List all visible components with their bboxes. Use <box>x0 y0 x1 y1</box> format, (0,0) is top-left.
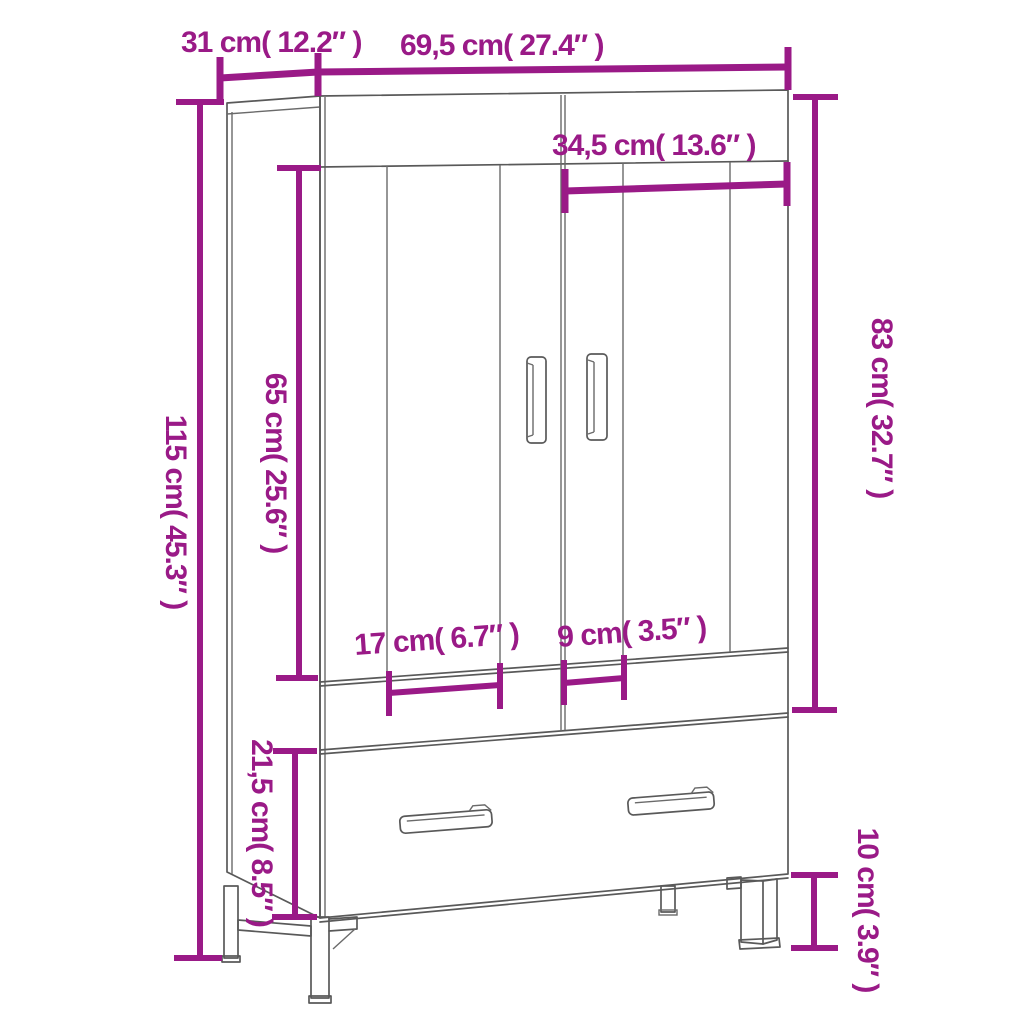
dim-label-depth: 31 cm( 12.2″ ) <box>181 26 361 59</box>
door-handle-left <box>527 357 546 443</box>
dim-height: 115 cm( 45.3″ ) <box>159 102 224 958</box>
dim-label-right-offset: 9 cm( 3.5″ ) <box>556 611 707 654</box>
dim-depth-and-width: 31 cm( 12.2″ ) 69,5 cm( 27.4″ ) <box>181 26 788 100</box>
drawer-handle-right <box>627 787 714 816</box>
side-panel-top-edge <box>227 107 320 114</box>
dim-label-door-height: 65 cm( 25.6″ ) <box>259 373 292 553</box>
dim-right-offset: 9 cm( 3.5″ ) <box>556 611 707 705</box>
dim-leg-height: 10 cm( 3.9″ ) <box>791 828 884 993</box>
dim-door-height: 65 cm( 25.6″ ) <box>259 168 321 678</box>
dim-door-width: 34,5 cm( 13.6″ ) <box>552 129 787 213</box>
dim-front-height: 83 cm( 32.7″ ) <box>792 97 898 710</box>
dim-label-drawer-height: 21,5 cm( 8.5″ ) <box>245 739 278 927</box>
dim-label-left-offset: 17 cm( 6.7″ ) <box>353 618 520 662</box>
cabinet-bottom-line <box>320 878 788 922</box>
drawer-top-line <box>320 713 788 754</box>
dim-label-leg-height: 10 cm( 3.9″ ) <box>851 828 884 993</box>
door-handle-right <box>587 354 607 440</box>
leg-back-right <box>659 886 677 915</box>
dim-left-offset: 17 cm( 6.7″ ) <box>353 618 520 716</box>
wardrobe-drawing <box>222 90 788 1003</box>
dim-label-width: 69,5 cm( 27.4″ ) <box>400 29 604 62</box>
leg-front-left <box>309 917 357 1003</box>
dim-label-door-width: 34,5 cm( 13.6″ ) <box>552 129 756 162</box>
leg-front-right <box>727 877 780 949</box>
drawer-handle-left <box>399 804 492 833</box>
dimension-diagram: 31 cm( 12.2″ ) 69,5 cm( 27.4″ ) 34,5 cm(… <box>0 0 1024 1024</box>
dim-label-front-height: 83 cm( 32.7″ ) <box>865 318 898 498</box>
wardrobe-front-face <box>320 90 788 918</box>
dim-label-height: 115 cm( 45.3″ ) <box>159 415 192 610</box>
